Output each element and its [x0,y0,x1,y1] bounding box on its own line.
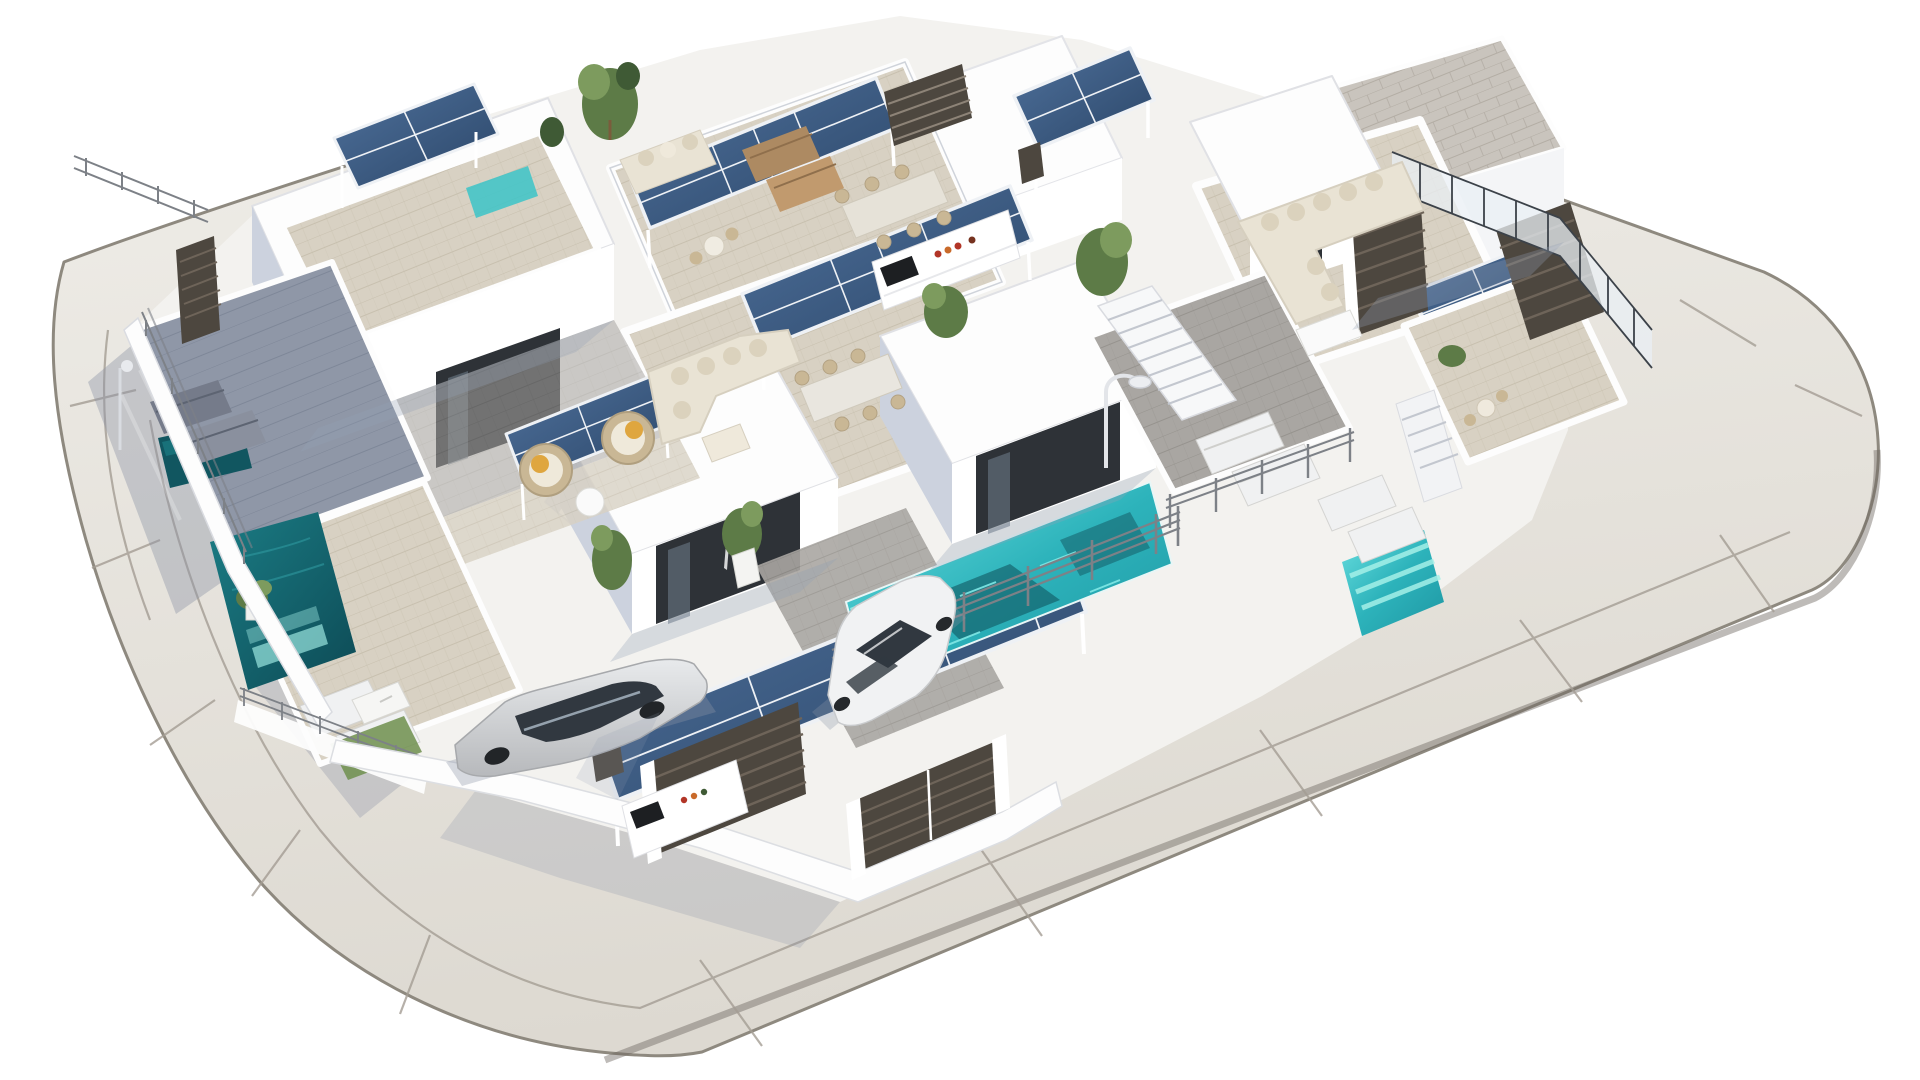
railing-top-left [74,156,208,222]
scene-canvas [0,0,1920,1080]
tree-right-top [1100,222,1132,258]
tree-by-gate-top [591,525,613,551]
architectural-render [0,0,1920,1080]
tree-small-left [540,117,564,147]
plant [1438,345,1466,367]
fence-panel-dark-left [176,236,221,344]
side-table-white [576,488,604,516]
plant-center-top [922,283,946,309]
